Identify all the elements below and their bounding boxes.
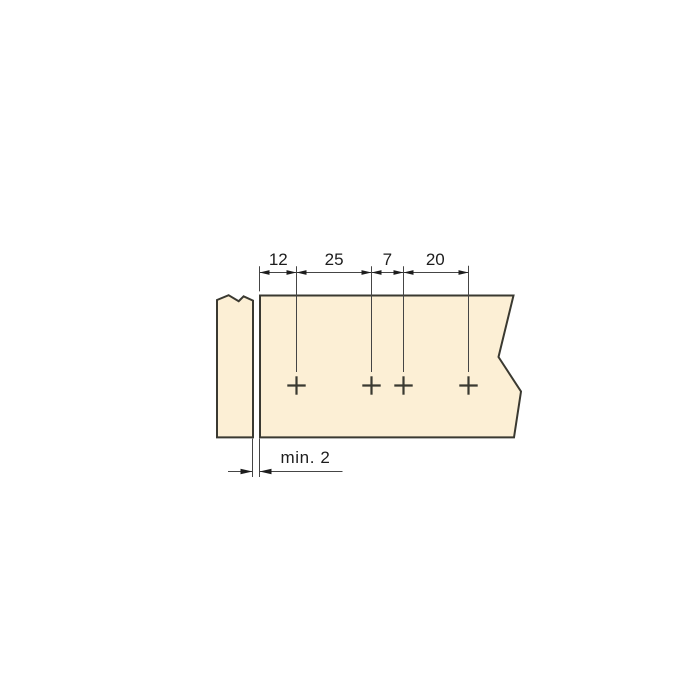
svg-text:12: 12 xyxy=(269,250,288,269)
svg-text:min. 2: min. 2 xyxy=(281,448,331,467)
svg-text:25: 25 xyxy=(325,250,344,269)
svg-text:7: 7 xyxy=(383,250,392,269)
svg-text:20: 20 xyxy=(426,250,445,269)
